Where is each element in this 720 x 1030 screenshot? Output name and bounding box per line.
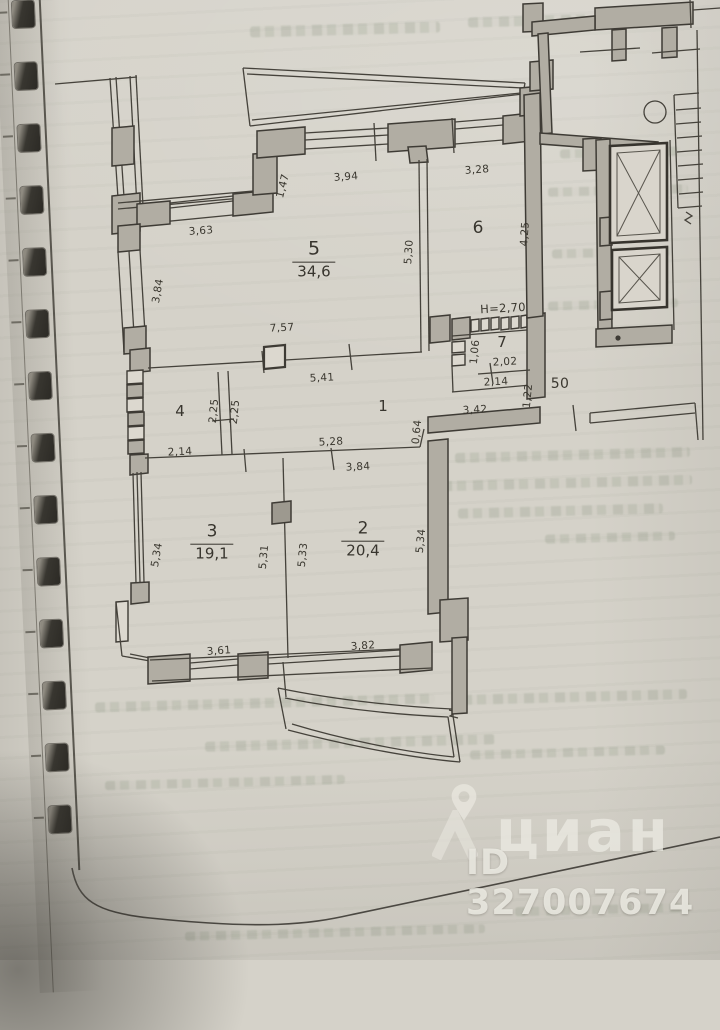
staircase <box>674 30 703 440</box>
binder-hole <box>15 62 38 90</box>
room-number: 5 <box>292 240 335 260</box>
edge-tick <box>14 383 24 385</box>
dim-3-42: 3,42 <box>462 403 487 416</box>
dim-5-34-right: 5,34 <box>414 528 429 554</box>
room-label-3: 3 19,1 <box>190 524 233 563</box>
binder-hole <box>26 310 49 338</box>
room-number: 4 <box>175 404 185 420</box>
edge-tick <box>28 693 38 695</box>
room-number: 1 <box>378 399 388 415</box>
wall-east-main <box>524 93 543 318</box>
binder-hole <box>29 372 52 400</box>
binder-hole <box>17 124 40 152</box>
ceiling-height-label: Н=2,70 <box>480 300 526 316</box>
edge-tick <box>23 569 33 571</box>
room-label-2: 2 20,4 <box>341 521 384 560</box>
room-number: 3 <box>190 524 233 542</box>
shaft-circle <box>644 101 666 123</box>
room-label-7: 7 <box>497 335 507 351</box>
edge-tick <box>6 197 16 199</box>
binder-hole <box>48 805 71 833</box>
dim-3-61: 3,61 <box>206 644 231 658</box>
dim-2-02: 2,02 <box>492 355 517 368</box>
dim-5-41: 5,41 <box>309 371 334 384</box>
room-number: 6 <box>473 220 484 238</box>
edge-tick <box>31 755 41 757</box>
room-number: 7 <box>497 335 507 351</box>
column-rooms-2-3 <box>272 501 291 524</box>
binder-hole <box>37 558 60 586</box>
room-label-1: 1 <box>378 399 388 415</box>
dim-5-30: 5,30 <box>402 239 416 264</box>
dim-1-06: 1,06 <box>468 339 483 365</box>
room-label-6: 6 <box>473 220 484 238</box>
wall-north <box>257 86 542 163</box>
room-number: 2 <box>341 521 384 539</box>
dim-3-82: 3,82 <box>350 639 375 653</box>
vestibule-top-right <box>523 0 720 153</box>
watermark-id: ID 327007674 <box>466 843 720 923</box>
binder-hole <box>40 620 63 648</box>
elevator-shafts <box>583 138 674 347</box>
room-label-5: 5 34,6 <box>292 240 335 281</box>
wall-south <box>148 642 432 684</box>
edge-tick <box>11 321 21 323</box>
dim-7-57: 7,57 <box>269 321 294 334</box>
column-room5 <box>264 345 285 369</box>
dim-2-14-b: 2,14 <box>483 375 508 388</box>
edge-tick <box>0 11 7 13</box>
wall-west-room4-blocks <box>127 370 144 454</box>
dim-2-25-b: 2,25 <box>228 399 243 425</box>
wall-west-room3 <box>116 454 150 661</box>
binder-hole <box>23 248 46 276</box>
dim-5-28: 5,28 <box>318 435 343 448</box>
dim-3-94: 3,94 <box>333 170 358 184</box>
room-area: 20,4 <box>341 541 384 560</box>
dim-2-14: 2,14 <box>167 445 192 458</box>
room-label-4: 4 <box>175 404 185 420</box>
dim-5-31: 5,31 <box>257 544 272 570</box>
edge-tick <box>9 259 19 261</box>
balcony-top-strip <box>243 68 525 126</box>
edge-tick <box>20 507 30 509</box>
dim-3-84-b: 3,84 <box>345 460 370 473</box>
wall-west-room5 <box>118 224 150 373</box>
binder-hole <box>43 682 66 710</box>
edge-tick <box>3 135 13 137</box>
binder-hole <box>31 434 54 462</box>
label-50: 50 <box>551 376 569 392</box>
wall-east-room2 <box>428 439 468 714</box>
binder-hole <box>46 743 69 771</box>
room-area: 34,6 <box>292 262 335 281</box>
balcony-bottom <box>278 662 460 762</box>
edge-tick <box>34 817 44 819</box>
binder-hole <box>34 496 57 524</box>
dim-2-25-a: 2,25 <box>207 398 222 424</box>
dim-5-33: 5,33 <box>296 542 311 568</box>
dim-4-25: 4,25 <box>518 221 532 246</box>
dim-3-28: 3,28 <box>464 163 489 177</box>
binder-hole <box>12 0 35 28</box>
dim-1-22: 1,22 <box>521 383 536 409</box>
room-area: 19,1 <box>190 544 233 563</box>
dim-0-64: 0,64 <box>410 419 425 445</box>
edge-tick <box>0 73 10 75</box>
break-line-mark <box>685 212 692 224</box>
dim-3-63: 3,63 <box>188 224 213 238</box>
door-dot <box>615 335 620 340</box>
photo-of-floor-plan-page: { "watermark": { "brand": "циан", "id": … <box>0 0 720 960</box>
binder-hole <box>20 186 43 214</box>
edge-tick <box>17 445 27 447</box>
edge-tick <box>25 631 35 633</box>
